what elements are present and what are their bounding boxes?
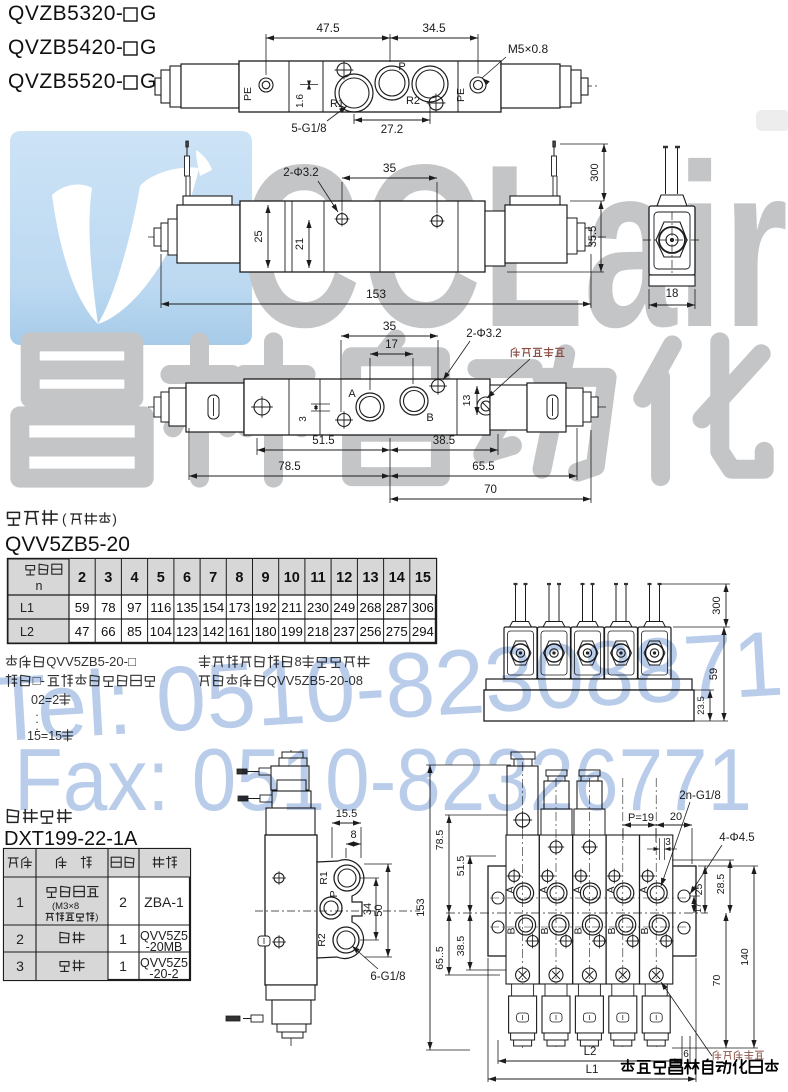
svg-text:B: B: [639, 927, 651, 934]
svg-text:2: 2: [78, 570, 86, 586]
svg-text:B: B: [572, 927, 584, 934]
svg-text:6: 6: [183, 570, 191, 586]
svg-text:2-Φ3.2: 2-Φ3.2: [466, 328, 501, 340]
svg-text:211: 211: [281, 600, 302, 615]
svg-text:2: 2: [16, 931, 24, 947]
svg-text:12: 12: [336, 570, 352, 586]
svg-text:116: 116: [150, 600, 171, 615]
svg-text:3: 3: [104, 570, 112, 586]
svg-text:199: 199: [281, 624, 303, 639]
svg-text:M5×0.8: M5×0.8: [508, 42, 549, 56]
svg-text:3: 3: [665, 837, 671, 848]
svg-text:51.5: 51.5: [312, 435, 334, 447]
svg-text:7: 7: [209, 570, 217, 586]
svg-text:8: 8: [350, 829, 356, 841]
svg-text:153: 153: [415, 898, 427, 916]
svg-text:59: 59: [75, 600, 90, 615]
svg-text:(: (: [62, 512, 67, 527]
svg-text:): ): [112, 512, 117, 527]
svg-text:192: 192: [255, 600, 277, 615]
svg-text:L2: L2: [584, 1046, 597, 1058]
svg-text:2: 2: [119, 894, 127, 910]
svg-text:173: 173: [228, 600, 250, 615]
svg-text:28.5: 28.5: [715, 874, 727, 895]
svg-text:QVZB5520-: QVZB5520-: [8, 70, 123, 93]
svg-text:A: A: [538, 886, 550, 893]
svg-text:PE: PE: [455, 88, 467, 102]
svg-text:18: 18: [666, 288, 679, 300]
svg-text:1: 1: [119, 958, 127, 974]
svg-text:R1: R1: [318, 871, 330, 885]
svg-text:2-Φ3.2: 2-Φ3.2: [283, 167, 318, 179]
svg-text:17: 17: [693, 903, 703, 913]
svg-text:B: B: [606, 927, 618, 934]
svg-text:5-G1/8: 5-G1/8: [291, 123, 326, 135]
svg-text:A: A: [348, 388, 356, 400]
svg-text:3: 3: [298, 416, 309, 422]
svg-text:249: 249: [333, 600, 355, 615]
svg-text:78.5: 78.5: [434, 830, 446, 851]
svg-text:QVZB5320-: QVZB5320-: [8, 2, 123, 25]
svg-text:B: B: [539, 927, 551, 934]
svg-text:6-G1/8: 6-G1/8: [370, 971, 405, 983]
svg-text:DXT199-22-1A: DXT199-22-1A: [4, 828, 138, 850]
svg-text:PE: PE: [242, 87, 254, 101]
svg-text:47: 47: [75, 624, 90, 639]
svg-text:A: A: [638, 886, 650, 893]
svg-text:R2: R2: [316, 933, 328, 947]
svg-text:): ): [95, 912, 98, 923]
svg-text:85: 85: [127, 624, 142, 639]
svg-text:38.5: 38.5: [455, 936, 467, 957]
svg-text:34.5: 34.5: [422, 21, 446, 35]
svg-text:21: 21: [294, 238, 306, 250]
svg-text:35.5: 35.5: [587, 226, 599, 247]
svg-text:50: 50: [373, 904, 385, 916]
svg-text:25: 25: [253, 230, 265, 242]
svg-text:B: B: [426, 412, 433, 424]
svg-text:4: 4: [130, 570, 138, 586]
svg-text:17: 17: [385, 339, 398, 351]
svg-text:104: 104: [150, 624, 172, 639]
svg-text:B: B: [506, 927, 518, 934]
svg-text:123: 123: [176, 624, 198, 639]
svg-text:10: 10: [284, 570, 300, 586]
svg-text:8: 8: [235, 570, 243, 586]
svg-text:1.6: 1.6: [295, 94, 306, 108]
svg-text:65.5: 65.5: [472, 461, 494, 473]
svg-text:9: 9: [262, 570, 270, 586]
svg-text:78: 78: [101, 600, 116, 615]
svg-text:QVZB5420-: QVZB5420-: [8, 36, 123, 59]
svg-text:27.2: 27.2: [381, 124, 403, 136]
svg-text:78.5: 78.5: [278, 461, 300, 473]
svg-text:140: 140: [739, 948, 751, 966]
svg-text:6: 6: [683, 1049, 689, 1060]
svg-text:66: 66: [101, 624, 116, 639]
svg-text:237: 237: [333, 624, 355, 639]
svg-text:L1: L1: [586, 1064, 599, 1076]
svg-text:154: 154: [202, 600, 224, 615]
svg-text:n: n: [36, 579, 43, 593]
svg-text:35: 35: [383, 319, 397, 333]
svg-text:97: 97: [127, 600, 142, 615]
svg-text:G: G: [140, 2, 156, 25]
svg-text:306: 306: [412, 600, 434, 615]
svg-text:A: A: [505, 886, 517, 893]
svg-text:3: 3: [16, 958, 24, 974]
svg-text:51.5: 51.5: [455, 856, 467, 877]
svg-text:268: 268: [359, 600, 381, 615]
svg-text:13: 13: [461, 395, 473, 407]
svg-text:ZBA-1: ZBA-1: [144, 894, 184, 910]
svg-text:-20MB: -20MB: [146, 940, 183, 954]
svg-text:R2: R2: [406, 95, 420, 107]
svg-text:38.5: 38.5: [433, 435, 455, 447]
svg-text:A: A: [571, 886, 583, 893]
svg-text:(M3×8: (M3×8: [52, 901, 79, 912]
svg-text:70: 70: [711, 975, 723, 987]
svg-text:47.5: 47.5: [316, 21, 340, 35]
svg-text:153: 153: [366, 287, 386, 301]
svg-text:11: 11: [310, 570, 325, 586]
svg-text:15: 15: [415, 570, 431, 586]
svg-text:G: G: [140, 70, 156, 93]
svg-text:1: 1: [119, 931, 127, 947]
svg-text:287: 287: [386, 600, 408, 615]
svg-text:-20-2: -20-2: [149, 967, 178, 981]
svg-text:A: A: [605, 886, 617, 893]
svg-text:P: P: [398, 61, 405, 73]
svg-text:70: 70: [484, 484, 497, 496]
svg-text:65..5: 65..5: [434, 946, 446, 970]
svg-text:5: 5: [157, 570, 165, 586]
svg-text:G: G: [140, 36, 156, 59]
svg-text:300: 300: [711, 596, 723, 614]
svg-text:142: 142: [202, 624, 224, 639]
svg-text:35: 35: [383, 161, 397, 175]
svg-text:1: 1: [16, 894, 24, 910]
svg-text:P: P: [328, 890, 340, 897]
svg-text:300: 300: [589, 163, 601, 181]
svg-text:14: 14: [389, 570, 405, 586]
svg-text:218: 218: [307, 624, 329, 639]
svg-text:180: 180: [255, 624, 277, 639]
svg-text:13: 13: [362, 570, 378, 586]
svg-text:L2: L2: [20, 625, 34, 639]
svg-text:QVV5ZB5-20: QVV5ZB5-20: [5, 533, 130, 556]
svg-text:Fax: 0510-82326771: Fax: 0510-82326771: [14, 730, 752, 829]
svg-text:230: 230: [307, 600, 329, 615]
svg-text:25: 25: [693, 884, 705, 896]
svg-text:4-Φ4.5: 4-Φ4.5: [719, 832, 754, 844]
svg-text:135: 135: [176, 600, 198, 615]
svg-text:L1: L1: [20, 601, 34, 615]
svg-text:161: 161: [228, 624, 250, 639]
